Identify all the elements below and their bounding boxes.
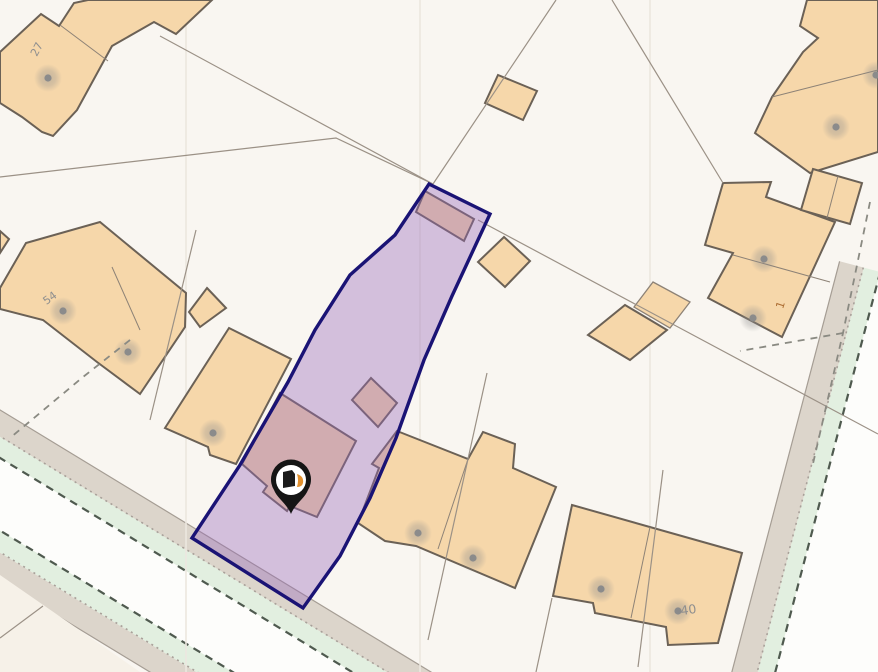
- building-dot: [750, 245, 778, 273]
- building-dot: [34, 64, 62, 92]
- house-number-40: 40: [679, 601, 697, 618]
- building-dot: [114, 338, 142, 366]
- pin-logo-house-icon: [283, 470, 295, 488]
- building-dot: [404, 519, 432, 547]
- building-dot: [587, 575, 615, 603]
- map-viewport: 27 54 1 40: [0, 0, 878, 672]
- map-canvas: 27 54 1 40: [0, 0, 878, 672]
- building-dot: [739, 304, 767, 332]
- building-dot: [199, 419, 227, 447]
- building-dot: [822, 113, 850, 141]
- building-dot: [459, 544, 487, 572]
